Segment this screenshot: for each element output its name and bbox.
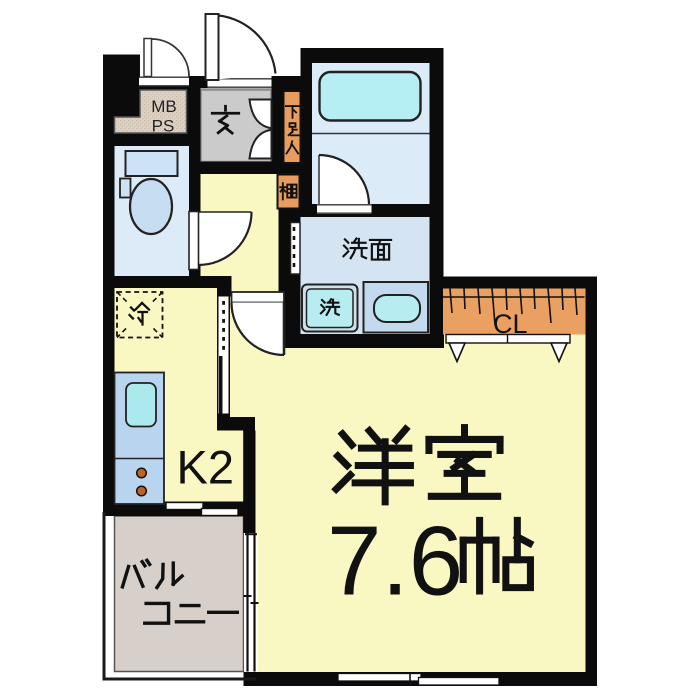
svg-text:PS: PS bbox=[152, 117, 175, 136]
svg-text:CL: CL bbox=[493, 309, 528, 339]
svg-text:K2: K2 bbox=[177, 441, 235, 494]
svg-text:7.6: 7.6 bbox=[327, 506, 463, 616]
svg-text:MB: MB bbox=[151, 97, 177, 116]
